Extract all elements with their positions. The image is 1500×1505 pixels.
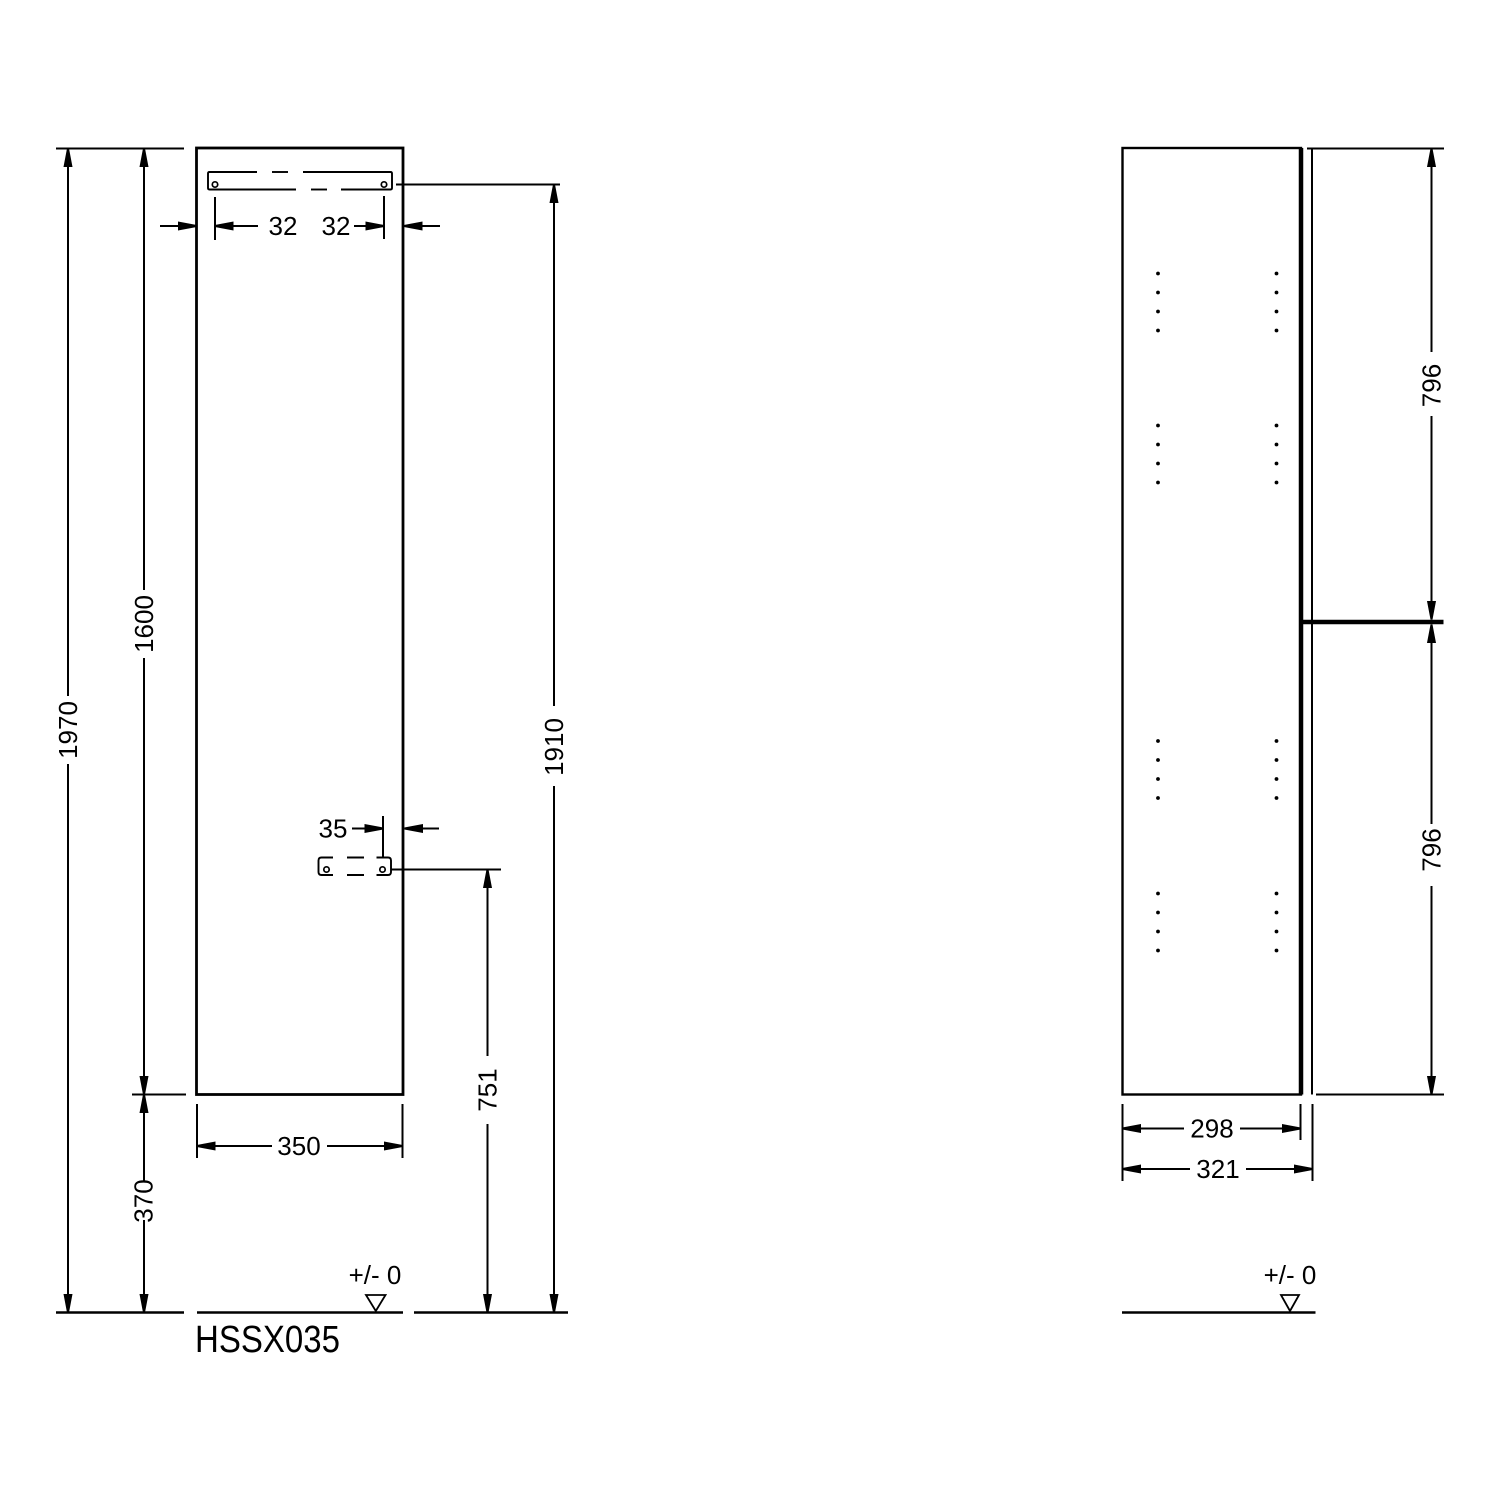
svg-text:1600: 1600 xyxy=(129,595,159,653)
svg-text:350: 350 xyxy=(277,1131,320,1161)
svg-text:32: 32 xyxy=(322,211,351,241)
svg-text:1970: 1970 xyxy=(53,701,83,759)
svg-text:35: 35 xyxy=(319,814,348,844)
svg-text:796: 796 xyxy=(1417,364,1447,407)
svg-text:796: 796 xyxy=(1417,828,1447,871)
svg-text:32: 32 xyxy=(269,211,298,241)
svg-text:370: 370 xyxy=(129,1179,159,1222)
svg-text:751: 751 xyxy=(473,1068,503,1111)
svg-text:+/- 0: +/- 0 xyxy=(1264,1260,1317,1290)
svg-text:321: 321 xyxy=(1196,1154,1239,1184)
svg-text:298: 298 xyxy=(1190,1114,1233,1144)
svg-text:HSSX035: HSSX035 xyxy=(195,1319,340,1361)
svg-text:+/- 0: +/- 0 xyxy=(349,1260,402,1290)
svg-text:1910: 1910 xyxy=(539,718,569,776)
